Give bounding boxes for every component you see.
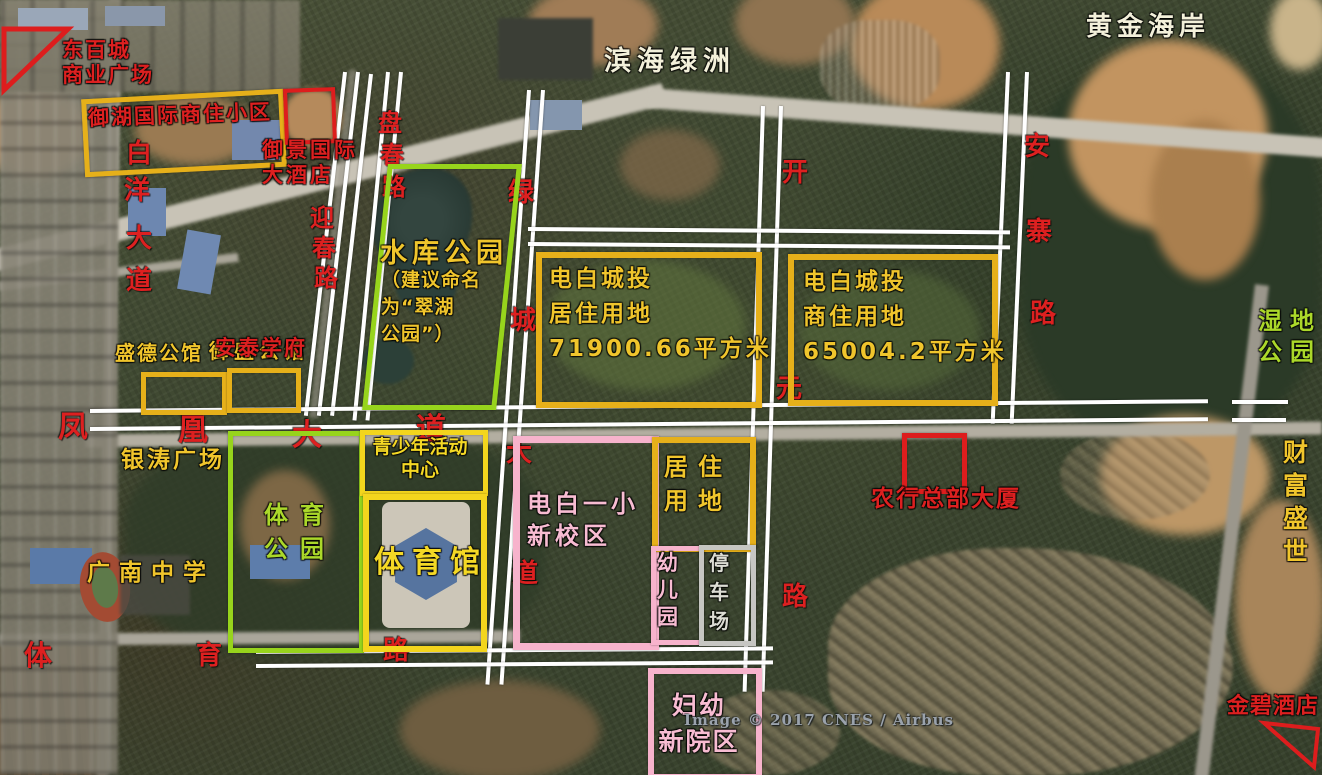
label-chengtou-commercial: 电白城投 商住用地 65004.2平方米 — [803, 265, 1007, 370]
label-dongbaicheng: 东百城 商业广场 — [62, 38, 154, 88]
imagery-attribution: Image © 2017 CNES / Airbus — [684, 711, 954, 729]
road-label-panchun-char: 盘 — [378, 103, 402, 138]
road-label-yingchun-char: 路 — [314, 258, 338, 293]
jinbi-arrow-outline — [1256, 713, 1322, 775]
label-chengtou-residential: 电白城投 居住用地 71900.66平方米 — [549, 262, 772, 367]
parcel-box-shengde — [141, 372, 227, 415]
label-youeryuan: 幼儿园 — [657, 550, 679, 631]
label-shuiku-note: （建议命名 为“翠湖 公园”） — [381, 267, 481, 348]
road-label-lucheng-char: 城 — [510, 300, 536, 337]
parcel-box-yusheng — [227, 368, 301, 413]
label-shengde-gongguan: 盛德公馆 — [115, 341, 203, 365]
label-binhai-lvzhou: 滨海绿洲 — [604, 46, 736, 78]
terrain-dirt — [620, 130, 720, 200]
road-label-baiyang-char: 道 — [126, 260, 152, 297]
label-huangjin-haian: 黄金海岸 — [1086, 12, 1210, 43]
satellite-map-canvas[interactable]: 白 洋 大 道 迎 春 路 盘 春 路 绿 城 大 道 开 元 路 安 寨 路 … — [0, 0, 1322, 775]
annotation-road-line-fenghuang-east — [1232, 400, 1288, 404]
label-yixiao-campus: 电白一小 新校区 — [527, 488, 639, 552]
label-tiyuguan: 体育馆 — [374, 545, 488, 581]
road-label-anzhai-char: 安 — [1024, 126, 1050, 163]
label-shidi-gongyuan: 湿地 公园 — [1258, 306, 1322, 368]
terrain-construction — [820, 20, 940, 110]
terrain-dirt — [400, 680, 600, 775]
parcel-box-yujing-hotel — [283, 87, 337, 145]
label-jinbi-hotel: 金碧酒店 — [1227, 694, 1319, 720]
label-nonghang-hq: 农行总部大厦 — [871, 486, 1021, 514]
building-blue-roof — [105, 6, 165, 26]
label-yujing-hotel: 御景国际 大酒店 — [262, 138, 358, 188]
road-label-baiyang-char: 大 — [126, 218, 152, 255]
building-dark-block — [498, 18, 593, 80]
road-label-fenghuang-char: 凤 — [58, 402, 88, 446]
label-antai-xuefu: 安泰学府 — [215, 336, 307, 361]
terrain-village — [1060, 430, 1210, 520]
road-label-baiyang-char: 洋 — [124, 170, 150, 207]
road-label-tiyu-char: 体 — [24, 634, 52, 674]
label-qingshaonian-center: 青少年活动 中心 — [364, 436, 476, 482]
road-label-anzhai-char: 路 — [1030, 293, 1056, 330]
label-tiyu-gongyuan: 体育 公园 — [264, 498, 336, 566]
label-caifu-shengshi: 财富盛世 — [1283, 436, 1310, 568]
label-shuiku-title: 水库公园 — [380, 238, 508, 270]
road-label-anzhai-char: 寨 — [1026, 211, 1052, 248]
road-label-kaiyuan-char: 路 — [782, 576, 808, 613]
parcel-box-nonghang — [902, 433, 967, 494]
label-juzhu-yongdi: 居住 用地 — [664, 450, 732, 518]
road-label-tiyu-char: 育 — [196, 635, 222, 672]
label-yintao-guangchang: 银涛广场 — [121, 447, 225, 475]
annotation-road-line-fenghuang-east — [1232, 418, 1286, 422]
road-label-kaiyuan-char: 开 — [782, 152, 808, 189]
label-tingchechang: 停车场 — [709, 549, 730, 636]
label-guangnan-school: 广南中学 — [87, 560, 215, 588]
